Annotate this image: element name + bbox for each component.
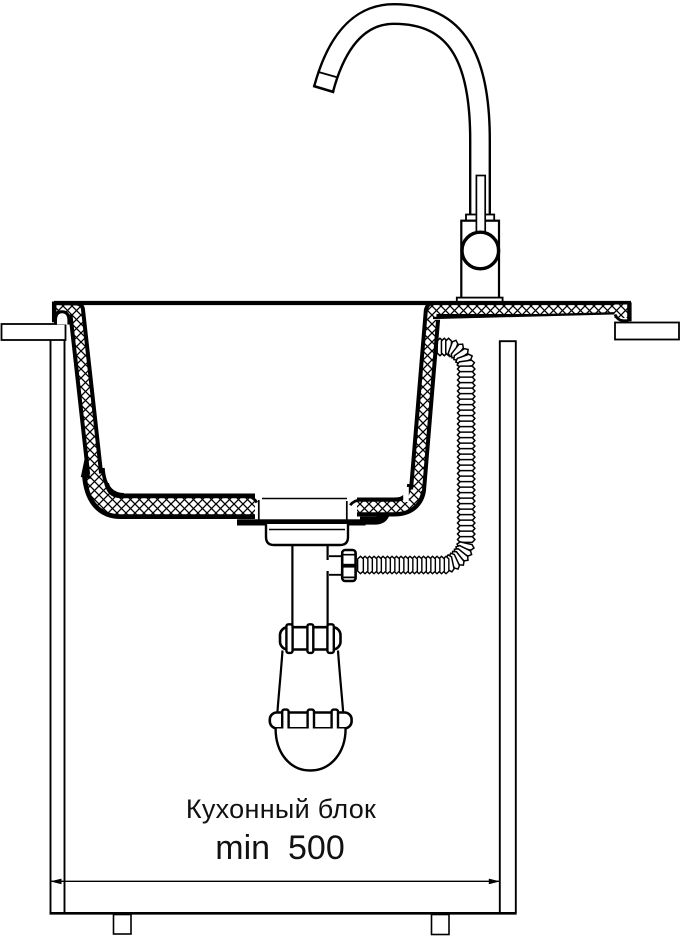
- svg-text:Кухонный блок: Кухонный блок: [186, 794, 376, 824]
- svg-text:min 500: min 500: [215, 829, 344, 867]
